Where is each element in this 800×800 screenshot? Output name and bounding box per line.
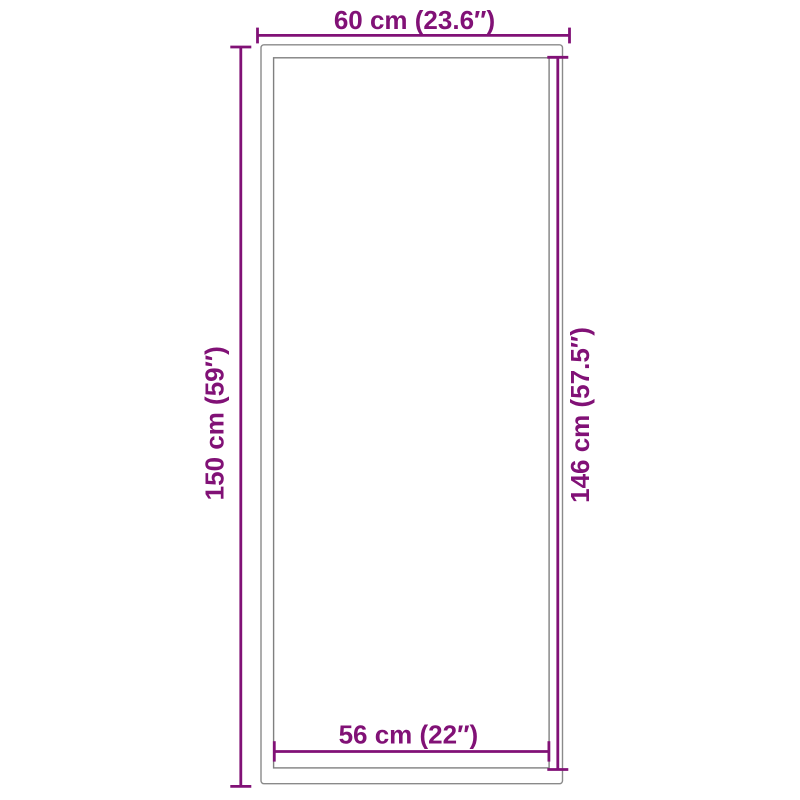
svg-text:60 cm (23.6″): 60 cm (23.6″) bbox=[334, 5, 495, 35]
svg-text:150 cm (59″): 150 cm (59″) bbox=[200, 346, 230, 500]
svg-text:56 cm (22″): 56 cm (22″) bbox=[339, 720, 479, 750]
svg-text:146 cm (57.5″): 146 cm (57.5″) bbox=[565, 327, 595, 503]
